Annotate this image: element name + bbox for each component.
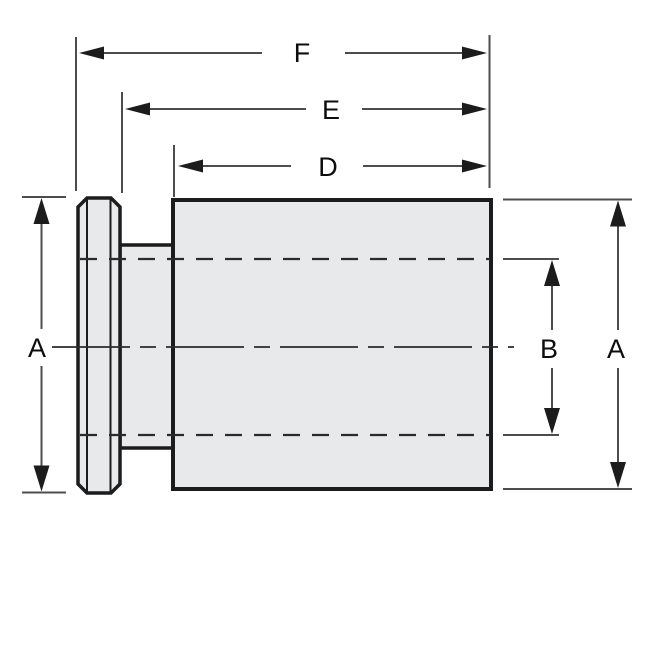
dimension-d: D xyxy=(174,145,487,197)
technical-drawing: F E D A xyxy=(0,0,670,670)
dim-label-e: E xyxy=(322,95,340,125)
arrow-down-icon xyxy=(544,408,560,434)
arrow-down-icon xyxy=(34,466,50,492)
arrow-right-icon xyxy=(462,160,487,173)
arrow-left-icon xyxy=(178,160,203,173)
arrow-up-icon xyxy=(34,198,50,224)
dimension-a-left: A xyxy=(22,197,66,493)
dim-label-b: B xyxy=(540,334,558,364)
dim-label-f: F xyxy=(294,38,311,68)
part-geometry xyxy=(78,198,491,493)
dim-label-d: D xyxy=(318,152,338,182)
collar-flange xyxy=(78,198,120,493)
drawing-canvas: F E D A xyxy=(0,0,670,670)
dimension-a-right: A xyxy=(503,200,632,490)
arrow-left-icon xyxy=(125,103,150,116)
dimension-f: F xyxy=(76,37,487,191)
dimension-e: E xyxy=(122,92,487,193)
collar-body xyxy=(173,200,491,489)
arrow-down-icon xyxy=(610,462,626,488)
dim-label-a-right: A xyxy=(607,334,625,364)
dim-label-a-left: A xyxy=(28,333,46,363)
arrow-up-icon xyxy=(544,260,560,286)
arrow-right-icon xyxy=(462,103,487,116)
arrow-left-icon xyxy=(79,47,104,60)
arrow-up-icon xyxy=(610,201,626,227)
arrow-right-icon xyxy=(462,47,487,60)
